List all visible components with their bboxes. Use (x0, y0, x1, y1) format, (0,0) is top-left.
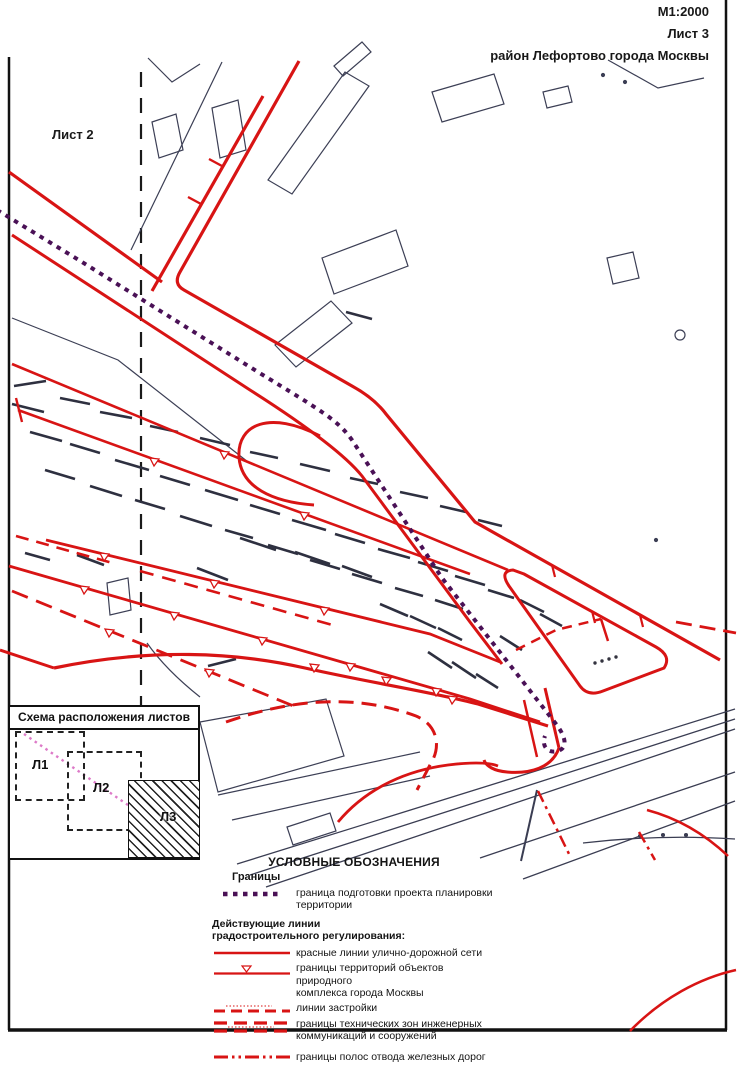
adjacent-sheet-label: Лист 2 (52, 127, 94, 142)
red-double-dashed-line-icon (212, 1020, 292, 1034)
dot-row (593, 655, 617, 664)
red-line-triangle-marker-icon (212, 964, 292, 976)
legend-item-natural-complex: границы территорий объектов природного к… (208, 962, 500, 999)
legend-group-borders-heading: Границы (232, 871, 500, 883)
legend-item-label: граница подготовки проекта планировки те… (296, 887, 500, 912)
red-triangle-markers (80, 451, 457, 704)
inset-sheet-3-label: Л3 (160, 809, 176, 824)
red-dash-dot-dot-line-icon (212, 1053, 292, 1061)
red-dashed-line-icon (212, 1004, 292, 1014)
legend: УСЛОВНЫЕ ОБОЗНАЧЕНИЯ Границы граница под… (208, 855, 500, 1066)
inset-sheet-1-label: Л1 (32, 757, 48, 772)
red-solid-line-icon (212, 949, 292, 957)
project-boundary-purple-dotted (0, 210, 565, 752)
legend-item-label: границы технических зон инженерных комму… (296, 1018, 500, 1043)
legend-item-railway-strips: границы полос отвода железных дорог (208, 1051, 500, 1063)
inset-title: Схема расположения листов (10, 707, 198, 730)
legend-title: УСЛОВНЫЕ ОБОЗНАЧЕНИЯ (208, 855, 500, 869)
legend-item-technical-zones: границы технических зон инженерных комму… (208, 1018, 500, 1043)
legend-item-label: границы территорий объектов природного к… (296, 962, 500, 999)
legend-item-label: границы полос отвода железных дорог (296, 1051, 500, 1063)
legend-item-building-lines: линии застройки (208, 1002, 500, 1014)
purple-dotted-line-icon (221, 889, 283, 899)
legend-group-regulation-heading: Действующие линии градостроительного рег… (212, 918, 500, 943)
sheet-layout-inset: Схема расположения листов Л1 Л2 Л3 (8, 705, 200, 860)
map-sheet-page: { "header": { "scale": "М1:2000", "sheet… (0, 0, 737, 1043)
legend-item-project-boundary: граница подготовки проекта планировки те… (208, 887, 500, 912)
legend-item-label: линии застройки (296, 1002, 500, 1014)
legend-item-red-lines: красные линии улично-дорожной сети (208, 947, 500, 959)
legend-item-label: красные линии улично-дорожной сети (296, 947, 500, 959)
inset-sheet-2-label: Л2 (93, 780, 109, 795)
